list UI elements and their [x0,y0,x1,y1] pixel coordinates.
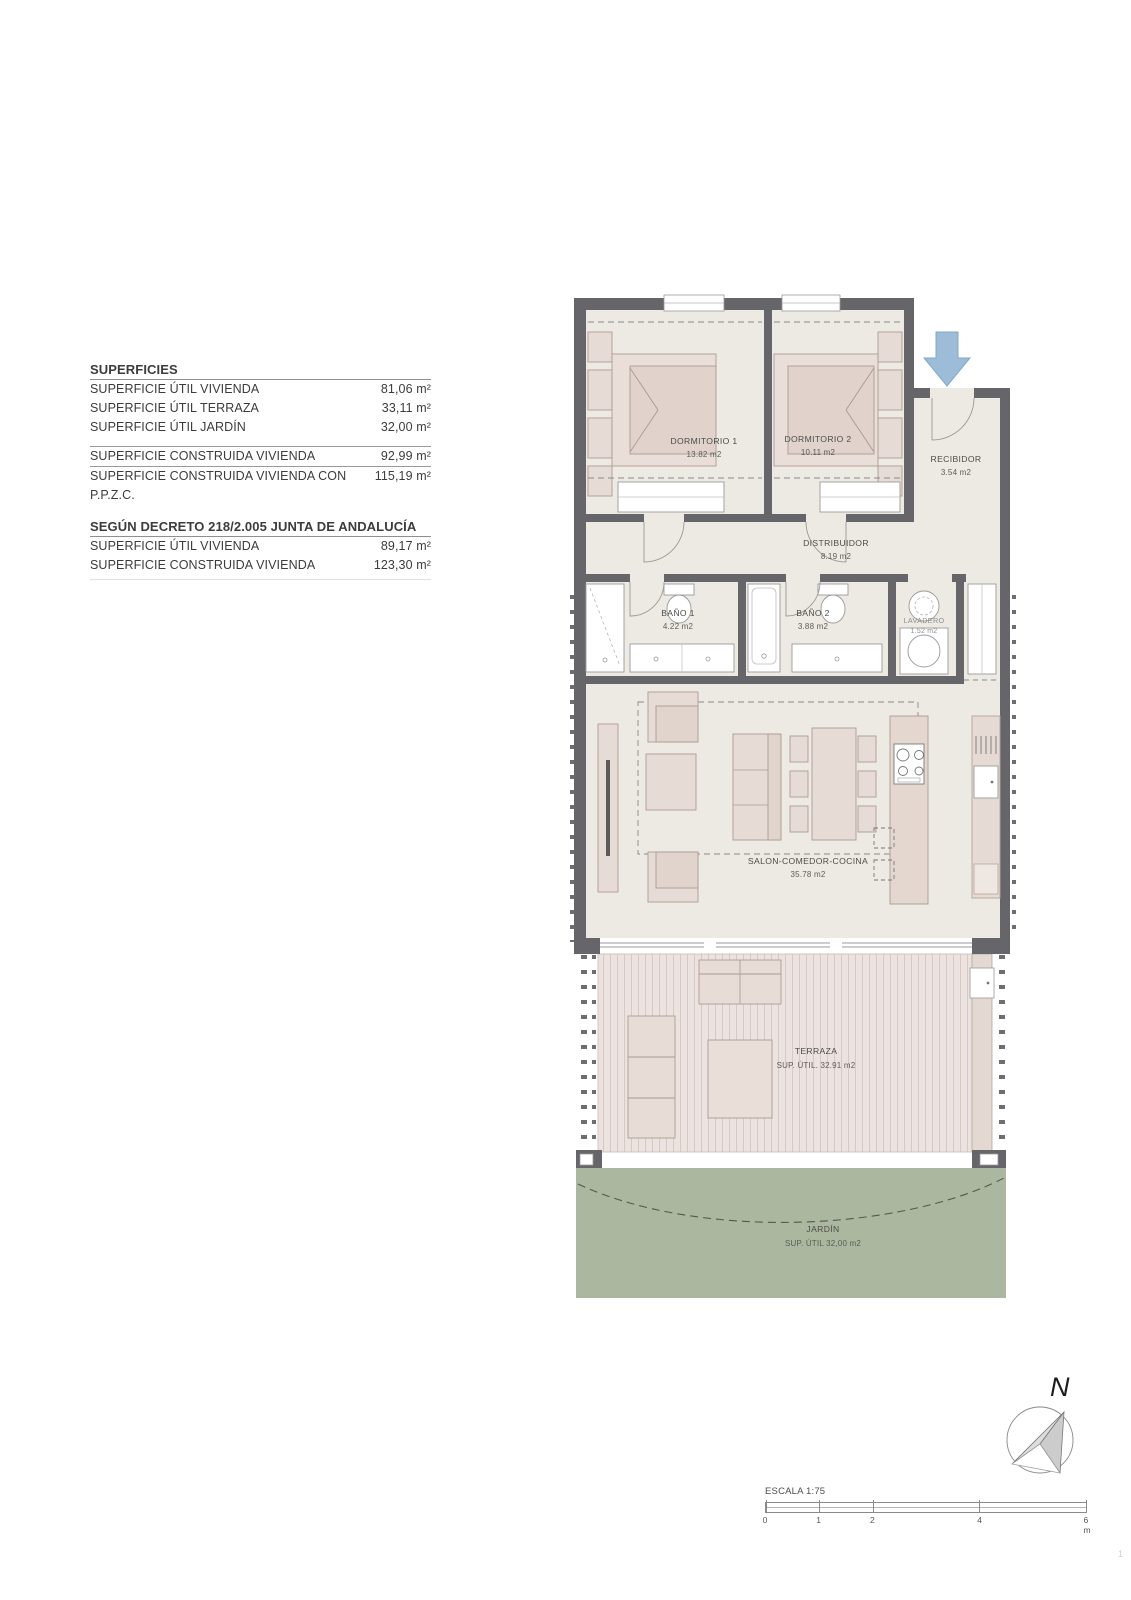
table-row: SUPERFICIE CONSTRUIDA VIVIENDA 92,99 m² [90,446,431,466]
table-row: SUPERFICIE CONSTRUIDA VIVIENDA 123,30 m² [90,556,431,575]
room-label: RECIBIDOR [931,454,982,464]
room-area: 3.54 m2 [941,468,972,477]
terrace-right-fence-hatch [994,954,1008,1152]
room-label: DORMITORIO 2 [784,434,851,444]
row-label: SUPERFICIE CONSTRUIDA VIVIENDA [90,556,315,575]
exterior-hatch-right [1012,592,1018,938]
toilet-tank [664,584,694,595]
row-label: SUPERFICIE CONSTRUIDA VIVIENDA [90,447,315,466]
row-label: SUPERFICIE ÚTIL TERRAZA [90,399,259,418]
tv [606,760,610,856]
row-label: SUPERFICIE ÚTIL VIVIENDA [90,380,259,399]
stove [894,744,924,784]
table-row: SUPERFICIE CONSTRUIDA VIVIENDA CON P.P.Z… [90,466,431,505]
scale-tick-label: 0 [763,1515,768,1525]
north-label: N [1050,1372,1070,1402]
room-area: 35.78 m2 [791,870,826,879]
row-value: 92,99 m² [373,447,431,466]
row-label: SUPERFICIE ÚTIL JARDÍN [90,418,246,437]
row-value: 81,06 m² [373,380,431,399]
garden-area [576,1168,1006,1298]
exterior-hatch-left [568,592,574,942]
scale-numbers: 0 1 2 4 6 m [765,1515,1087,1527]
outdoor-sofa [628,1016,675,1138]
surfaces-table: SUPERFICIES SUPERFICIE ÚTIL VIVIENDA 81,… [90,361,431,580]
room-label: DORMITORIO 1 [670,436,737,446]
scale-label: ESCALA 1:75 [765,1486,1087,1497]
sliding-glass-door [600,941,972,949]
dining-chair [790,736,808,762]
room-label: DISTRIBUIDOR [803,538,869,548]
terrace-left-fence-hatch [576,954,596,1150]
scale-tick-label: 2 [870,1515,875,1525]
dining-chair [858,771,876,797]
entrance-arrow-icon [924,332,970,386]
outdoor-table [708,1040,772,1118]
page-number: 1 [1118,1549,1123,1559]
surfaces-title: SUPERFICIES [90,361,431,380]
row-value: 32,00 m² [373,418,431,437]
room-label: BAÑO 2 [796,608,830,618]
scale-tick-label: 4 [977,1515,982,1525]
scale-bar: ESCALA 1:75 0 1 2 4 6 m [765,1486,1087,1527]
dining-chair [858,736,876,762]
row-label: SUPERFICIE CONSTRUIDA VIVIENDA CON P.P.Z… [90,467,367,505]
room-area: 8.19 m2 [821,552,852,561]
floor-plan: DORMITORIO 1 13.82 m2 DORMITORIO 2 10.11… [568,292,1018,1304]
counter-cabinet [974,864,998,894]
north-compass: N [1000,1366,1084,1484]
room-area: 1.52 m2 [911,628,938,635]
room-label: BAÑO 1 [661,608,695,618]
hall-closet [968,584,996,674]
room-area: 4.22 m2 [663,622,694,631]
row-value: 33,11 m² [374,399,431,418]
terrace-sink [970,968,994,998]
table-row: SUPERFICIE ÚTIL VIVIENDA 81,06 m² [90,380,431,399]
garden-gate-right [980,1154,998,1165]
room-area: SUP. ÚTIL 32,00 m2 [785,1239,861,1248]
toilet-tank [818,584,848,595]
dining-chair [790,771,808,797]
row-value: 89,17 m² [373,537,431,556]
wardrobe1 [618,482,724,512]
kitchen-sink [974,766,998,798]
dining-chair [790,806,808,832]
scale-tick-label: 1 [816,1515,821,1525]
dining-chair [858,806,876,832]
room-area: 10.11 m2 [801,448,836,457]
garden-gate-left [580,1154,593,1165]
room-label: TERRAZA [795,1046,838,1056]
row-label: SUPERFICIE ÚTIL VIVIENDA [90,537,259,556]
table-bottom-rule [90,579,431,580]
scale-ruler [765,1502,1087,1513]
dining-table [812,728,856,840]
room-label: SALON-COMEDOR-COCINA [748,856,868,866]
room-area: 13.82 m2 [687,450,722,459]
room-area: 3.88 m2 [798,622,829,631]
side-table [646,754,696,810]
row-value: 123,30 m² [366,556,431,575]
decree-title: SEGÚN DECRETO 218/2.005 JUNTA DE ANDALUC… [90,518,431,537]
room-label: LAVADERO [904,616,945,625]
plan-sheet: { "surfaces_table": { "title": "SUPERFIC… [0,0,1131,1600]
constructed-surface-group: SUPERFICIE CONSTRUIDA VIVIENDA 92,99 m² … [90,446,431,505]
scale-tick-label: 6 m [1083,1515,1090,1535]
table-row: SUPERFICIE ÚTIL JARDÍN 32,00 m² [90,418,431,437]
wardrobe2 [820,482,900,512]
row-value: 115,19 m² [367,467,431,486]
room-area: SUP. ÚTIL. 32.91 m2 [777,1061,856,1070]
vanity [792,644,882,672]
table-row: SUPERFICIE ÚTIL VIVIENDA 89,17 m² [90,537,431,556]
bathtub [748,584,780,672]
table-row: SUPERFICIE ÚTIL TERRAZA 33,11 m² [90,399,431,418]
room-label: JARDÍN [806,1224,839,1234]
